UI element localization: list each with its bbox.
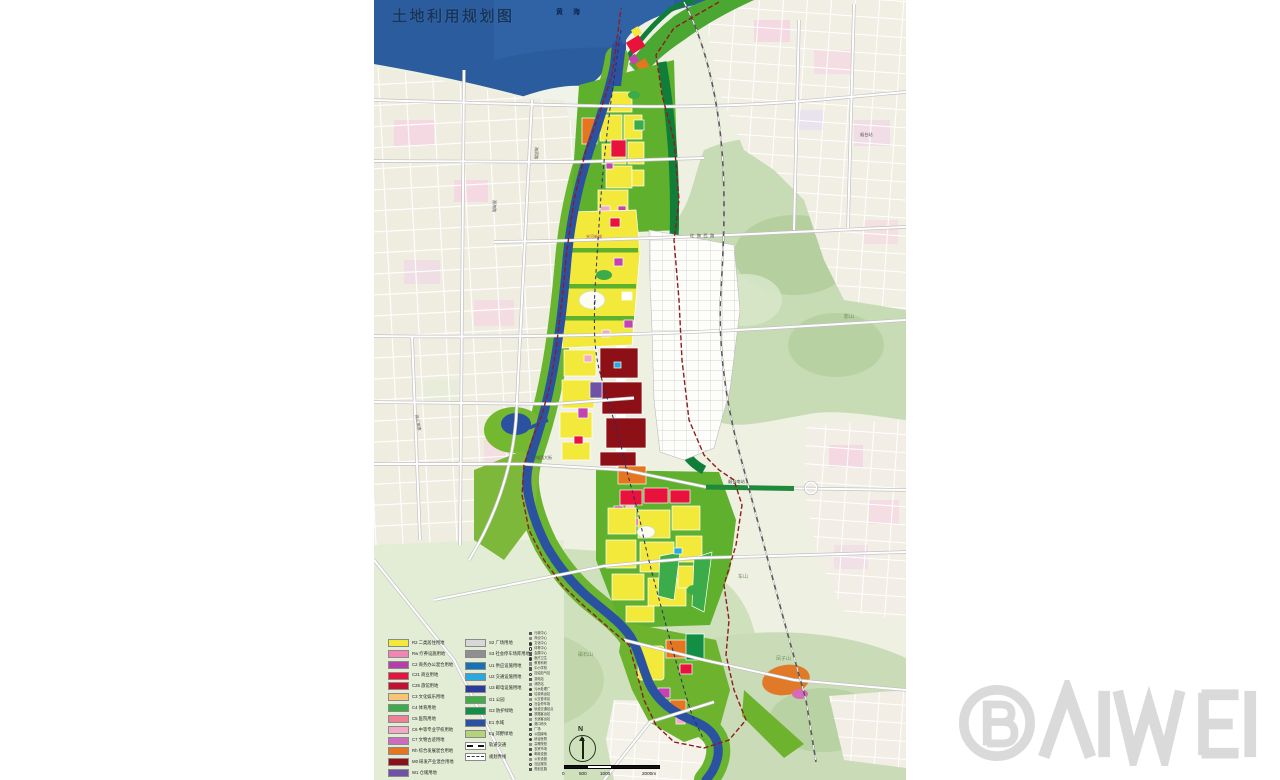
legend-symbol-icon: [529, 733, 532, 736]
legend-label: C7 文物古迹用地: [412, 738, 444, 742]
legend-item: W1 仓储用地: [388, 769, 454, 777]
legend-item: C4 体育用地: [388, 704, 454, 712]
legend-symbol-label: 高等院校: [534, 743, 547, 746]
legend-symbol-icon: [529, 688, 532, 691]
legend-symbol-label: 社会停车场: [534, 703, 550, 706]
legend-item: S3 社会停车场库用地: [465, 650, 530, 658]
legend-swatch: [388, 737, 409, 745]
legend-symbol-label: 公园绿地: [534, 733, 547, 736]
legend-symbol-icon: [529, 698, 532, 701]
legend-symbol-icon: [529, 678, 532, 681]
legend-item: 农贸市场: [529, 748, 553, 752]
legend-symbol-label: 加油加气站: [534, 672, 550, 675]
scale-tick-label: 1000: [600, 772, 610, 777]
legend-swatch: [465, 639, 486, 647]
legend-swatch: [388, 747, 409, 755]
legend-item: G1 公园: [465, 696, 530, 704]
legend-symbol-icon: [529, 713, 532, 716]
legend-swatch: [465, 662, 486, 670]
legend-item: 铁路客运站: [529, 713, 553, 717]
legend-symbol-icon: [529, 728, 532, 731]
legend-label: U1 供应设施用地: [489, 664, 521, 668]
legend-symbol-icon: [529, 642, 532, 645]
legend-label: M0 研发产业混合用地: [412, 760, 454, 764]
map-label: 观海路: [492, 200, 498, 212]
legend-item: 广场: [529, 728, 553, 732]
page-title: 土地利用规划图: [392, 5, 515, 26]
legend-item: 轨道交通站点: [529, 707, 553, 711]
legend-symbol-label: 污水处理厂: [534, 688, 550, 691]
legend-symbol-icon: [529, 748, 532, 751]
legend-label: Eg 郊野绿地: [489, 732, 513, 736]
legend-swatch: [388, 769, 409, 777]
legend-item: 垃圾转运站: [529, 692, 553, 696]
legend-symbol-icon: [529, 738, 532, 741]
legend-item: U1 供应设施用地: [465, 662, 530, 670]
legend-label: C25 旅馆用地: [412, 684, 438, 688]
legend-symbol-icon: [529, 693, 532, 696]
legend-swatch: [465, 753, 486, 761]
legend-item: Rw 疗养设施用地: [388, 650, 454, 658]
legend-item: 公交首末站: [529, 697, 553, 701]
legend-swatch: [388, 693, 409, 701]
legend-swatch: [465, 707, 486, 715]
legend-label: C5 医院用地: [412, 717, 436, 721]
legend-symbol-icon: [529, 673, 532, 676]
legend-symbol-label: 轨道交通站点: [534, 708, 553, 711]
legend-symbol-icon: [529, 768, 532, 771]
legend-label: U2 交通设施用地: [489, 675, 521, 679]
legend-label: G1 公园: [489, 698, 505, 702]
legend-item: C25 旅馆用地: [388, 682, 454, 690]
legend-swatch: [388, 650, 409, 658]
north-label: N: [578, 726, 583, 733]
legend-label: C4 体育用地: [412, 706, 436, 710]
legend-item: 高等院校: [529, 743, 553, 747]
scale-bar: [564, 765, 660, 769]
legend-item: C2 商务办公混合用地: [388, 661, 454, 669]
legend-symbol-icon: [529, 763, 532, 766]
legend-symbol-label: 农贸市场: [534, 748, 547, 751]
legend-label: W1 仓储用地: [412, 771, 437, 775]
map-label: 烟台站: [860, 131, 873, 138]
legend-item: 港口码头: [529, 723, 553, 727]
legend-label: 规划界线: [489, 755, 506, 759]
legend-item: C7 文物古迹用地: [388, 737, 454, 745]
legend-item: 规划支路: [529, 768, 553, 772]
legend-label: S2 广场用地: [489, 641, 513, 645]
legend-item: 长途客运站: [529, 718, 553, 722]
map-label: 黄 海: [556, 7, 584, 16]
legend-symbol-icon: [529, 652, 532, 655]
legend-item: 社会停车场: [529, 702, 553, 706]
map-label: 车山: [738, 573, 748, 580]
legend-item: G2 防护绿地: [465, 707, 530, 715]
legend-swatch: [388, 758, 409, 766]
legend-symbol-label: 行政中心: [534, 632, 547, 635]
legend-item: 公安设施: [529, 758, 553, 762]
legend-swatch: [465, 673, 486, 681]
legend-symbol-icon: [529, 723, 532, 726]
legend-column-symbols: 行政中心商业中心文化中心体育中心会展中心医疗卫生教育科研中小学校加油加气站变电站…: [529, 630, 553, 773]
legend-swatch: [465, 719, 486, 727]
legend-symbol-icon: [529, 647, 532, 650]
legend-swatch: [388, 682, 409, 690]
scale-tick-label: 500: [579, 772, 587, 777]
legend-item: 污水处理厂: [529, 687, 553, 691]
legend-symbol-label: 公安设施: [534, 758, 547, 761]
legend-column-landuse: R2 二类居住用地Rw 疗养设施用地C2 商务办公混合用地C21 商业用地C25…: [388, 630, 454, 780]
legend-symbol-icon: [529, 662, 532, 665]
legend-symbol-label: 社区服务: [534, 763, 547, 766]
legend-swatch: [465, 696, 486, 704]
legend-symbol-icon: [529, 683, 532, 686]
baiwei-watermark: BAIWEI: [958, 680, 1260, 766]
scale-tick-label: 2000m: [642, 772, 656, 777]
legend-label: S3 社会停车场库用地: [489, 652, 530, 656]
legend-swatch: [465, 650, 486, 658]
legend-item: C3 文化娱乐用地: [388, 693, 454, 701]
legend-item: U2 交通设施用地: [465, 673, 530, 681]
legend-symbol-label: 垃圾转运站: [534, 693, 550, 696]
legend-swatch: [388, 672, 409, 680]
map-label: 港城西大街: [532, 454, 552, 460]
legend-symbol-icon: [529, 637, 532, 640]
legend-swatch: [388, 661, 409, 669]
legend-item: 轨道交通: [465, 742, 530, 750]
legend-symbol-label: 公交首末站: [534, 698, 550, 701]
legend-item: C5 医院用地: [388, 715, 454, 723]
legend-symbol-icon: [529, 758, 532, 761]
legend-label: C3 文化娱乐用地: [412, 695, 444, 699]
legend-item: Eg 郊野绿地: [465, 730, 530, 738]
legend-item: S2 广场用地: [465, 639, 530, 647]
legend-item: R2 二类居住用地: [388, 639, 454, 647]
legend-label: C21 商业用地: [412, 673, 438, 677]
legend-label: G2 防护绿地: [489, 709, 513, 713]
legend-label: Rw 疗养设施用地: [412, 652, 445, 656]
northscale-group: N 050010002000m: [556, 726, 674, 778]
legend-symbol-label: 变电站: [534, 678, 544, 681]
legend-label: E1 水域: [489, 721, 504, 725]
legend-symbol-icon: [529, 743, 532, 746]
legend-symbol-label: 邮政设施: [534, 753, 547, 756]
legend-label: R2 二类居住用地: [412, 641, 444, 645]
legend-item: 综合医院: [529, 738, 553, 742]
legend-symbol-label: 消防站: [534, 683, 544, 686]
page: { "title": "土地利用规划图", "watermark_text": …: [0, 0, 1280, 780]
legend-item: M0 研发产业混合用地: [388, 758, 454, 766]
legend-item: C21 商业用地: [388, 672, 454, 680]
legend-symbol-icon: [529, 632, 532, 635]
legend-swatch: [465, 730, 486, 738]
legend-swatch: [465, 742, 486, 750]
map-label: 凤子山: [776, 655, 791, 662]
legend-column-facilities: S2 广场用地S3 社会停车场库用地U1 供应设施用地U2 交通设施用地U3 邮…: [465, 630, 530, 764]
legend-symbol-label: 规划支路: [534, 768, 547, 771]
map-label: 夹河新城: [586, 233, 602, 239]
legend-symbol-icon: [529, 708, 532, 711]
legend-symbol-label: 长途客运站: [534, 718, 550, 721]
scale-tick-label: 0: [562, 772, 565, 777]
legend-symbol-icon: [529, 667, 532, 670]
legend-symbol-icon: [529, 703, 532, 706]
map-label: 海滨路: [534, 147, 540, 159]
legend-item: 公园绿地: [529, 733, 553, 737]
legend-symbol-icon: [529, 718, 532, 721]
legend-item: C6 中等专业学校用地: [388, 726, 454, 734]
map-label: 影山: [844, 313, 854, 320]
legend-symbol-label: 港口码头: [534, 723, 547, 726]
legend: R2 二类居住用地Rw 疗养设施用地C2 商务办公混合用地C21 商业用地C25…: [388, 630, 583, 778]
legend-swatch: [388, 715, 409, 723]
legend-item: Rh 综合发展混合用地: [388, 747, 454, 755]
legend-item: U3 邮电设施用地: [465, 685, 530, 693]
legend-item: E1 水域: [465, 719, 530, 727]
legend-item: 变电站: [529, 677, 553, 681]
legend-label: Rh 综合发展混合用地: [412, 749, 453, 753]
legend-item: 消防站: [529, 682, 553, 686]
legend-swatch: [388, 639, 409, 647]
legend-item: 规划界线: [465, 753, 530, 761]
legend-symbol-label: 综合医院: [534, 738, 547, 741]
legend-swatch: [465, 685, 486, 693]
legend-swatch: [388, 704, 409, 712]
legend-item: 加油加气站: [529, 672, 553, 676]
legend-swatch: [388, 726, 409, 734]
legend-label: U3 邮电设施用地: [489, 686, 521, 690]
map-label: 红旗西路: [690, 232, 717, 239]
legend-label: 轨道交通: [489, 743, 506, 747]
legend-symbol-icon: [529, 753, 532, 756]
legend-item: 邮政设施: [529, 753, 553, 757]
legend-symbol-label: 广场: [534, 728, 540, 731]
legend-symbol-label: 铁路客运站: [534, 713, 550, 716]
legend-item: 社区服务: [529, 763, 553, 767]
legend-label: C6 中等专业学校用地: [412, 728, 453, 732]
map-label: 烟台南站: [728, 478, 745, 485]
legend-label: C2 商务办公混合用地: [412, 663, 453, 667]
legend-symbol-label: 商业中心: [534, 637, 547, 640]
legend-symbol-icon: [529, 657, 532, 660]
